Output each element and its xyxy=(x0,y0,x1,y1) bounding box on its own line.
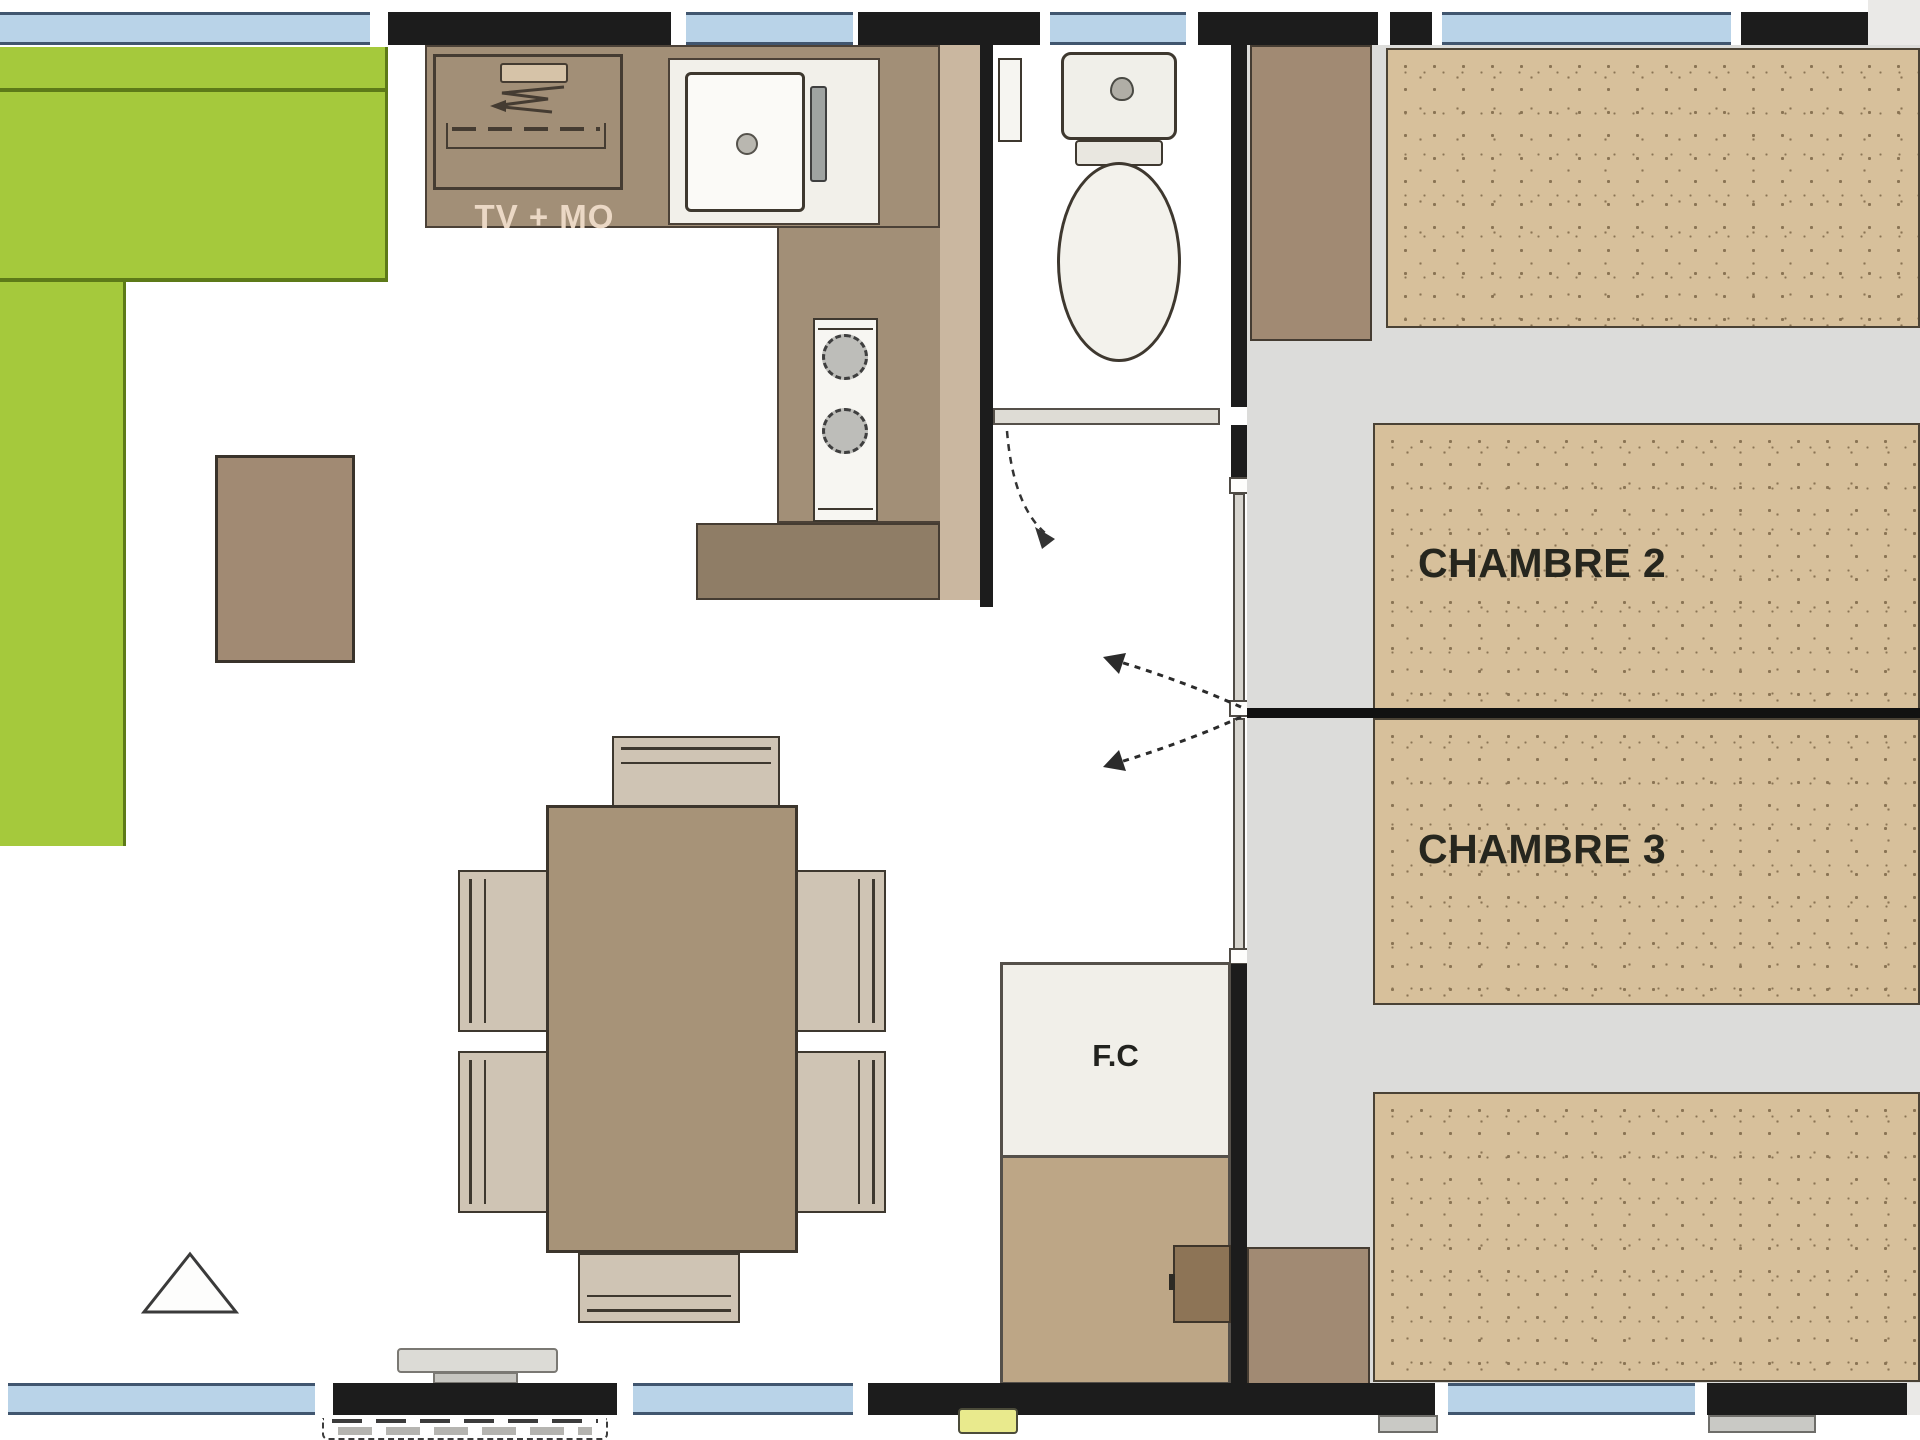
entry-step xyxy=(397,1348,558,1373)
dining-chair-right-2 xyxy=(796,1051,886,1213)
room-label-chambre2: CHAMBRE 2 xyxy=(1418,540,1666,587)
chassis-foot xyxy=(1378,1415,1438,1433)
burner-icon xyxy=(822,408,868,454)
top-wall-right-a xyxy=(1198,12,1378,45)
top-wall-mid xyxy=(858,12,1040,45)
sofa-vertical xyxy=(0,282,126,846)
sofa-horizontal xyxy=(0,47,388,282)
floor-plan: TV + MO F.C xyxy=(0,0,1920,1440)
entry-steps-dashed xyxy=(322,1418,608,1440)
wc-shelf xyxy=(998,58,1022,142)
tv-shelf-bracket xyxy=(446,123,606,149)
top-window-bedroom xyxy=(1442,12,1731,45)
wardrobe xyxy=(1250,45,1372,341)
bed-top xyxy=(1386,48,1920,328)
toilet-bowl xyxy=(1057,162,1181,362)
bottom-window-living xyxy=(8,1383,315,1415)
slide-track-cap xyxy=(1229,477,1249,494)
bottom-window-bedroom xyxy=(1448,1383,1695,1415)
dining-chair-bottom xyxy=(578,1253,740,1323)
sink-faucet xyxy=(810,86,827,182)
top-right-cut xyxy=(1868,0,1920,46)
room-label-chambre3: CHAMBRE 3 xyxy=(1418,826,1666,873)
wall-bedroom-c xyxy=(1231,964,1247,1383)
top-wall-right-b xyxy=(1390,12,1432,45)
fc-cabinet-door xyxy=(1173,1245,1231,1323)
slide-track-cap xyxy=(1229,948,1249,965)
dining-chair-right-1 xyxy=(796,870,886,1032)
threshold-marker xyxy=(958,1408,1018,1434)
bottom-entry-door xyxy=(333,1383,617,1415)
top-window-wc xyxy=(1050,12,1186,45)
sink-unit xyxy=(668,58,880,225)
tv-cabinet xyxy=(433,54,623,190)
tv-zigzag-icon xyxy=(444,81,614,121)
burner-icon xyxy=(822,334,868,380)
bed-bottom xyxy=(1373,1092,1920,1382)
stove-bottom-line xyxy=(818,508,873,510)
bottom-wall-mid xyxy=(868,1383,1435,1415)
kitchen-counter-cap xyxy=(696,523,940,600)
step-dash-row xyxy=(332,1419,598,1423)
dining-table xyxy=(546,805,798,1253)
tv-label: TV + MO xyxy=(452,198,637,236)
wc-door-swing-arc-icon xyxy=(993,427,1103,552)
wall-kitchen-wc xyxy=(980,45,993,607)
fc-door-knob xyxy=(1169,1274,1175,1290)
dining-chair-left-1 xyxy=(458,870,548,1032)
stove-unit xyxy=(813,318,878,522)
sofa-back-seam xyxy=(0,88,385,92)
step-dash-row xyxy=(338,1427,592,1435)
dining-chair-left-2 xyxy=(458,1051,548,1213)
bedroom-cabinet xyxy=(1247,1247,1370,1385)
side-table xyxy=(215,455,355,663)
bottom-wall-right xyxy=(1707,1383,1907,1415)
top-wall-kitchen xyxy=(388,12,671,45)
wc-door xyxy=(993,408,1220,425)
top-window-kitchen xyxy=(686,12,853,45)
sink-basin xyxy=(685,72,805,212)
chassis-foot xyxy=(1708,1415,1816,1433)
kitchen-counter-edge xyxy=(940,45,980,600)
tv-shelf-dashes xyxy=(452,127,600,131)
bottom-window-dining xyxy=(633,1383,853,1415)
wall-bedroom-a xyxy=(1231,45,1247,407)
sliding-door-arrows-icon xyxy=(1095,645,1245,780)
fc-closet-lower xyxy=(1000,1158,1231,1385)
stove-top-line xyxy=(818,328,873,330)
bottom-right-cut xyxy=(1907,1383,1920,1415)
top-window-living xyxy=(0,12,370,45)
ventilation-triangle-icon xyxy=(140,1248,240,1318)
toilet-flush-icon xyxy=(1110,77,1134,101)
sink-drain-icon xyxy=(736,133,758,155)
dining-chair-top xyxy=(612,736,780,808)
top-wall-corner xyxy=(1741,12,1868,45)
tv-remote xyxy=(500,63,568,83)
toilet-tank xyxy=(1061,52,1177,140)
wall-chambre-divider xyxy=(1247,708,1920,718)
fc-label: F.C xyxy=(1000,1038,1231,1074)
